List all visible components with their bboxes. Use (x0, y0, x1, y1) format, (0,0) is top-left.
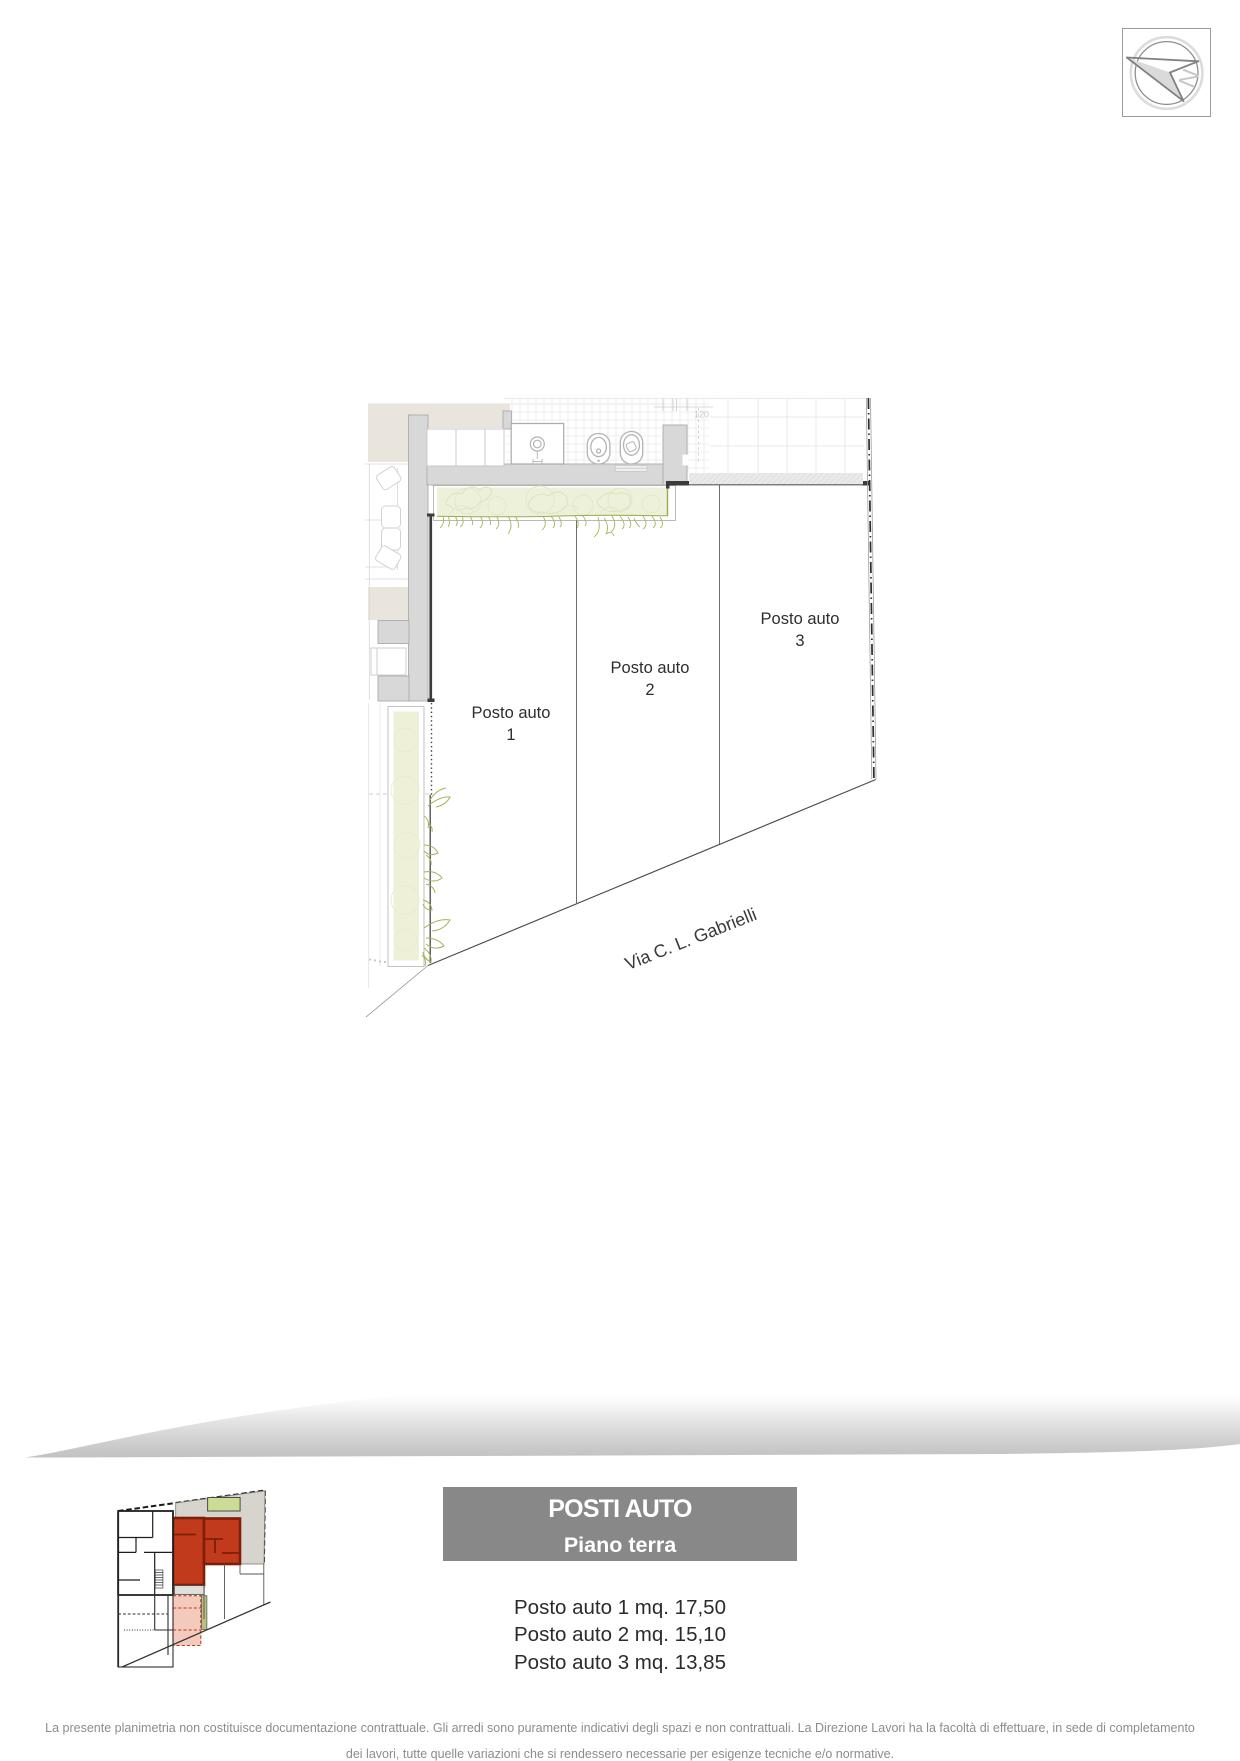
svg-text:120: 120 (694, 410, 709, 420)
